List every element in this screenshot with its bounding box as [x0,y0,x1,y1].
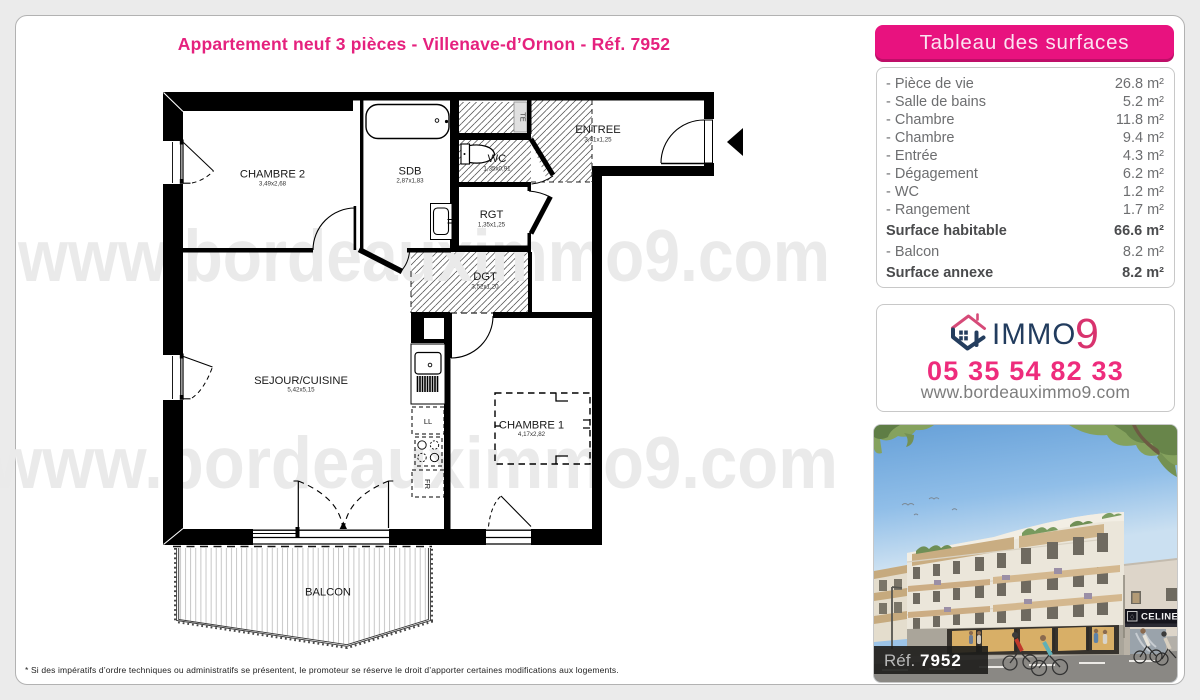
svg-text:SEJOUR/CUISINE: SEJOUR/CUISINE [254,375,348,387]
svg-text:BALCON: BALCON [305,587,351,599]
svg-text:9: 9 [1075,310,1099,356]
svg-text:1,35x0,91: 1,35x0,91 [483,166,511,173]
svg-text:SDB: SDB [398,166,421,178]
svg-text:www.bordeauximmo9.com: www.bordeauximmo9.com [0,423,838,504]
svg-text:TE: TE [519,112,528,122]
svg-text:1,35x1,25: 1,35x1,25 [478,222,506,229]
svg-text:♢: ♢ [1129,613,1135,621]
svg-text:FR: FR [423,479,432,490]
svg-text:4,17x2,82: 4,17x2,82 [518,431,546,438]
svg-text:CHAMBRE 1: CHAMBRE 1 [499,420,564,432]
svg-text:LL: LL [424,417,432,426]
svg-text:3,52x1,20: 3,52x1,20 [471,284,499,291]
svg-text:IMMO: IMMO [992,318,1076,351]
svg-text:3,41x1,25: 3,41x1,25 [584,137,612,144]
svg-text:7952: 7952 [920,651,962,670]
svg-text:2,87x1,83: 2,87x1,83 [396,177,424,184]
svg-text:www.bordeauximmo9.com: www.bordeauximmo9.com [17,216,830,297]
svg-text:CHAMBRE 2: CHAMBRE 2 [240,169,305,181]
svg-text:WC: WC [488,153,507,165]
svg-text:CELINE: CELINE [1141,612,1177,623]
svg-text:Réf.: Réf. [884,651,915,670]
svg-text:ENTREE: ENTREE [575,124,620,136]
svg-text:RGT: RGT [480,209,504,221]
svg-text:5,42x5,15: 5,42x5,15 [287,387,315,394]
svg-text:DGT: DGT [473,271,497,283]
svg-text:3,49x2,68: 3,49x2,68 [259,181,287,188]
